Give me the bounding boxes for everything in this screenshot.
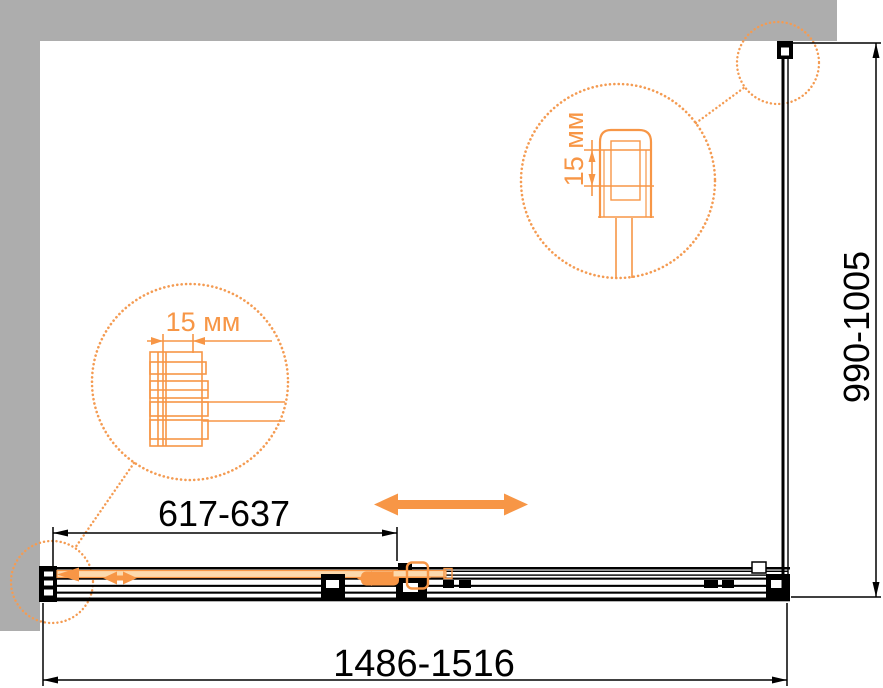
dim-arrow-down-icon	[873, 582, 880, 597]
glass-clamp-3	[704, 580, 718, 588]
fixed-glass-line-1	[430, 571, 788, 572]
dim-arrow-right-icon	[382, 530, 397, 537]
detail-circle-right	[521, 84, 715, 278]
technical-drawing-canvas: 617-637 1486-1516 990-1005	[0, 0, 883, 688]
rail-top-line	[40, 567, 790, 570]
callout-connector-left	[75, 463, 134, 548]
right-detail-profile	[584, 130, 654, 278]
detail-dim-arrow-left-icon	[151, 337, 163, 345]
bottom-rail-assembly	[39, 562, 790, 602]
detail-dim-arrow-right-icon	[193, 337, 205, 345]
callout-connector-right	[696, 87, 745, 123]
dim-arrow-left-icon	[43, 677, 58, 684]
slide-direction-arrow-icon	[374, 494, 528, 516]
left-detail-label: 15 мм	[166, 307, 241, 337]
dimension-label-overall-width: 1486-1516	[333, 643, 515, 685]
top-wall-profile	[777, 41, 793, 59]
side-panel-glass-line-2	[787, 57, 788, 600]
dim-arrow-left-icon	[53, 530, 68, 537]
right-detail-label: 15 мм	[559, 112, 589, 187]
side-panel-glass-line-1	[782, 57, 785, 600]
glass-clamp-2	[459, 580, 471, 588]
carriage-stop-block	[398, 563, 412, 571]
fixed-glass-line-2	[430, 574, 788, 575]
shower-enclosure-top-view-drawing: 617-637 1486-1516 990-1005	[0, 0, 883, 688]
glass-clamp-1	[443, 580, 454, 588]
center-roller-bracket	[321, 574, 345, 601]
left-wall-profile	[39, 566, 57, 602]
detail-dim-arrow-up-icon	[589, 150, 596, 162]
dimension-label-depth: 990-1005	[836, 251, 877, 403]
glass-clamp-4	[722, 580, 734, 588]
side-panel	[777, 41, 793, 600]
dim-arrow-up-icon	[873, 43, 880, 58]
dimension-label-door-width: 617-637	[158, 493, 290, 534]
frame-gray-left-band	[0, 0, 40, 631]
dim-arrow-right-icon	[772, 677, 787, 684]
detail-dim-arrow-down-icon	[589, 174, 596, 186]
frame-gray-top-band	[0, 0, 837, 41]
left-detail-profile	[147, 334, 285, 446]
